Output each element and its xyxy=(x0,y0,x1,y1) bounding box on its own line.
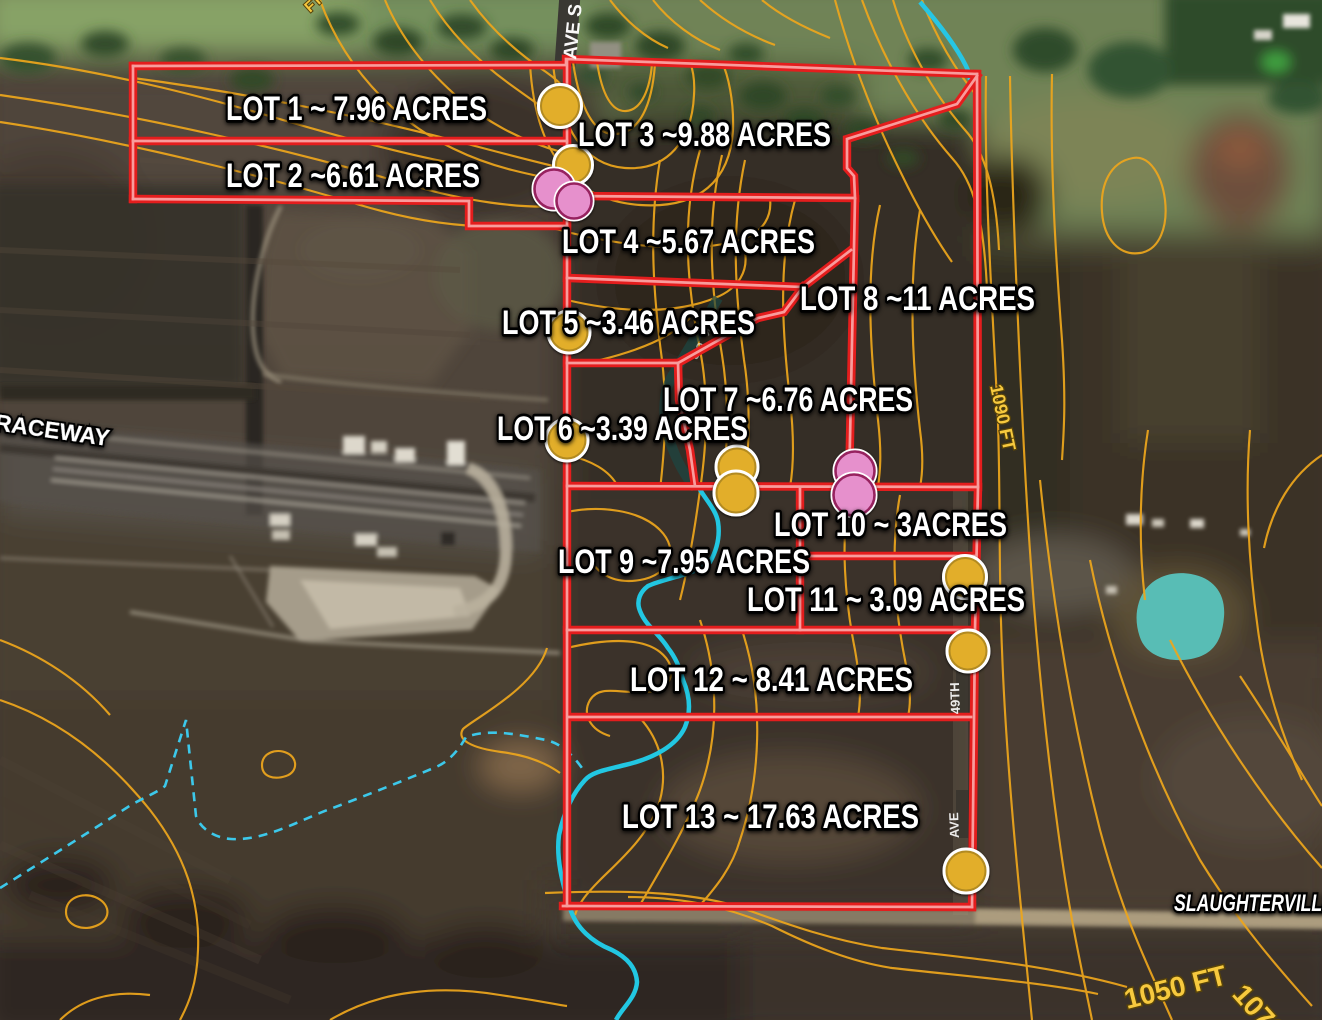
svg-text:LOT 3 ~9.88 ACRES: LOT 3 ~9.88 ACRES xyxy=(578,116,831,154)
svg-text:LOT 12 ~ 8.41 ACRES: LOT 12 ~ 8.41 ACRES xyxy=(630,661,913,699)
svg-text:LOT 5 ~3.46 ACRES: LOT 5 ~3.46 ACRES xyxy=(502,304,755,342)
svg-text:LOT 8 ~11 ACRES: LOT 8 ~11 ACRES xyxy=(800,280,1035,318)
svg-text:LOT 10 ~ 3ACRES: LOT 10 ~ 3ACRES xyxy=(774,506,1007,544)
svg-text:LOT 2 ~6.61 ACRES: LOT 2 ~6.61 ACRES xyxy=(226,157,480,195)
svg-text:LOT 11 ~ 3.09 ACRES: LOT 11 ~ 3.09 ACRES xyxy=(747,581,1025,619)
svg-text:49TH: 49TH xyxy=(947,682,963,714)
svg-text:LOT 9 ~7.95 ACRES: LOT 9 ~7.95 ACRES xyxy=(558,543,810,581)
svg-text:AVE: AVE xyxy=(946,812,962,839)
svg-text:LOT 7 ~6.76 ACRES: LOT 7 ~6.76 ACRES xyxy=(663,381,913,419)
svg-text:LOT 1 ~ 7.96 ACRES: LOT 1 ~ 7.96 ACRES xyxy=(226,90,487,128)
svg-text:LOT 4 ~5.67 ACRES: LOT 4 ~5.67 ACRES xyxy=(562,223,815,261)
svg-text:SLAUGHTERVILLE: SLAUGHTERVILLE xyxy=(1174,890,1322,917)
svg-text:LOT 13 ~ 17.63 ACRES: LOT 13 ~ 17.63 ACRES xyxy=(622,798,919,836)
